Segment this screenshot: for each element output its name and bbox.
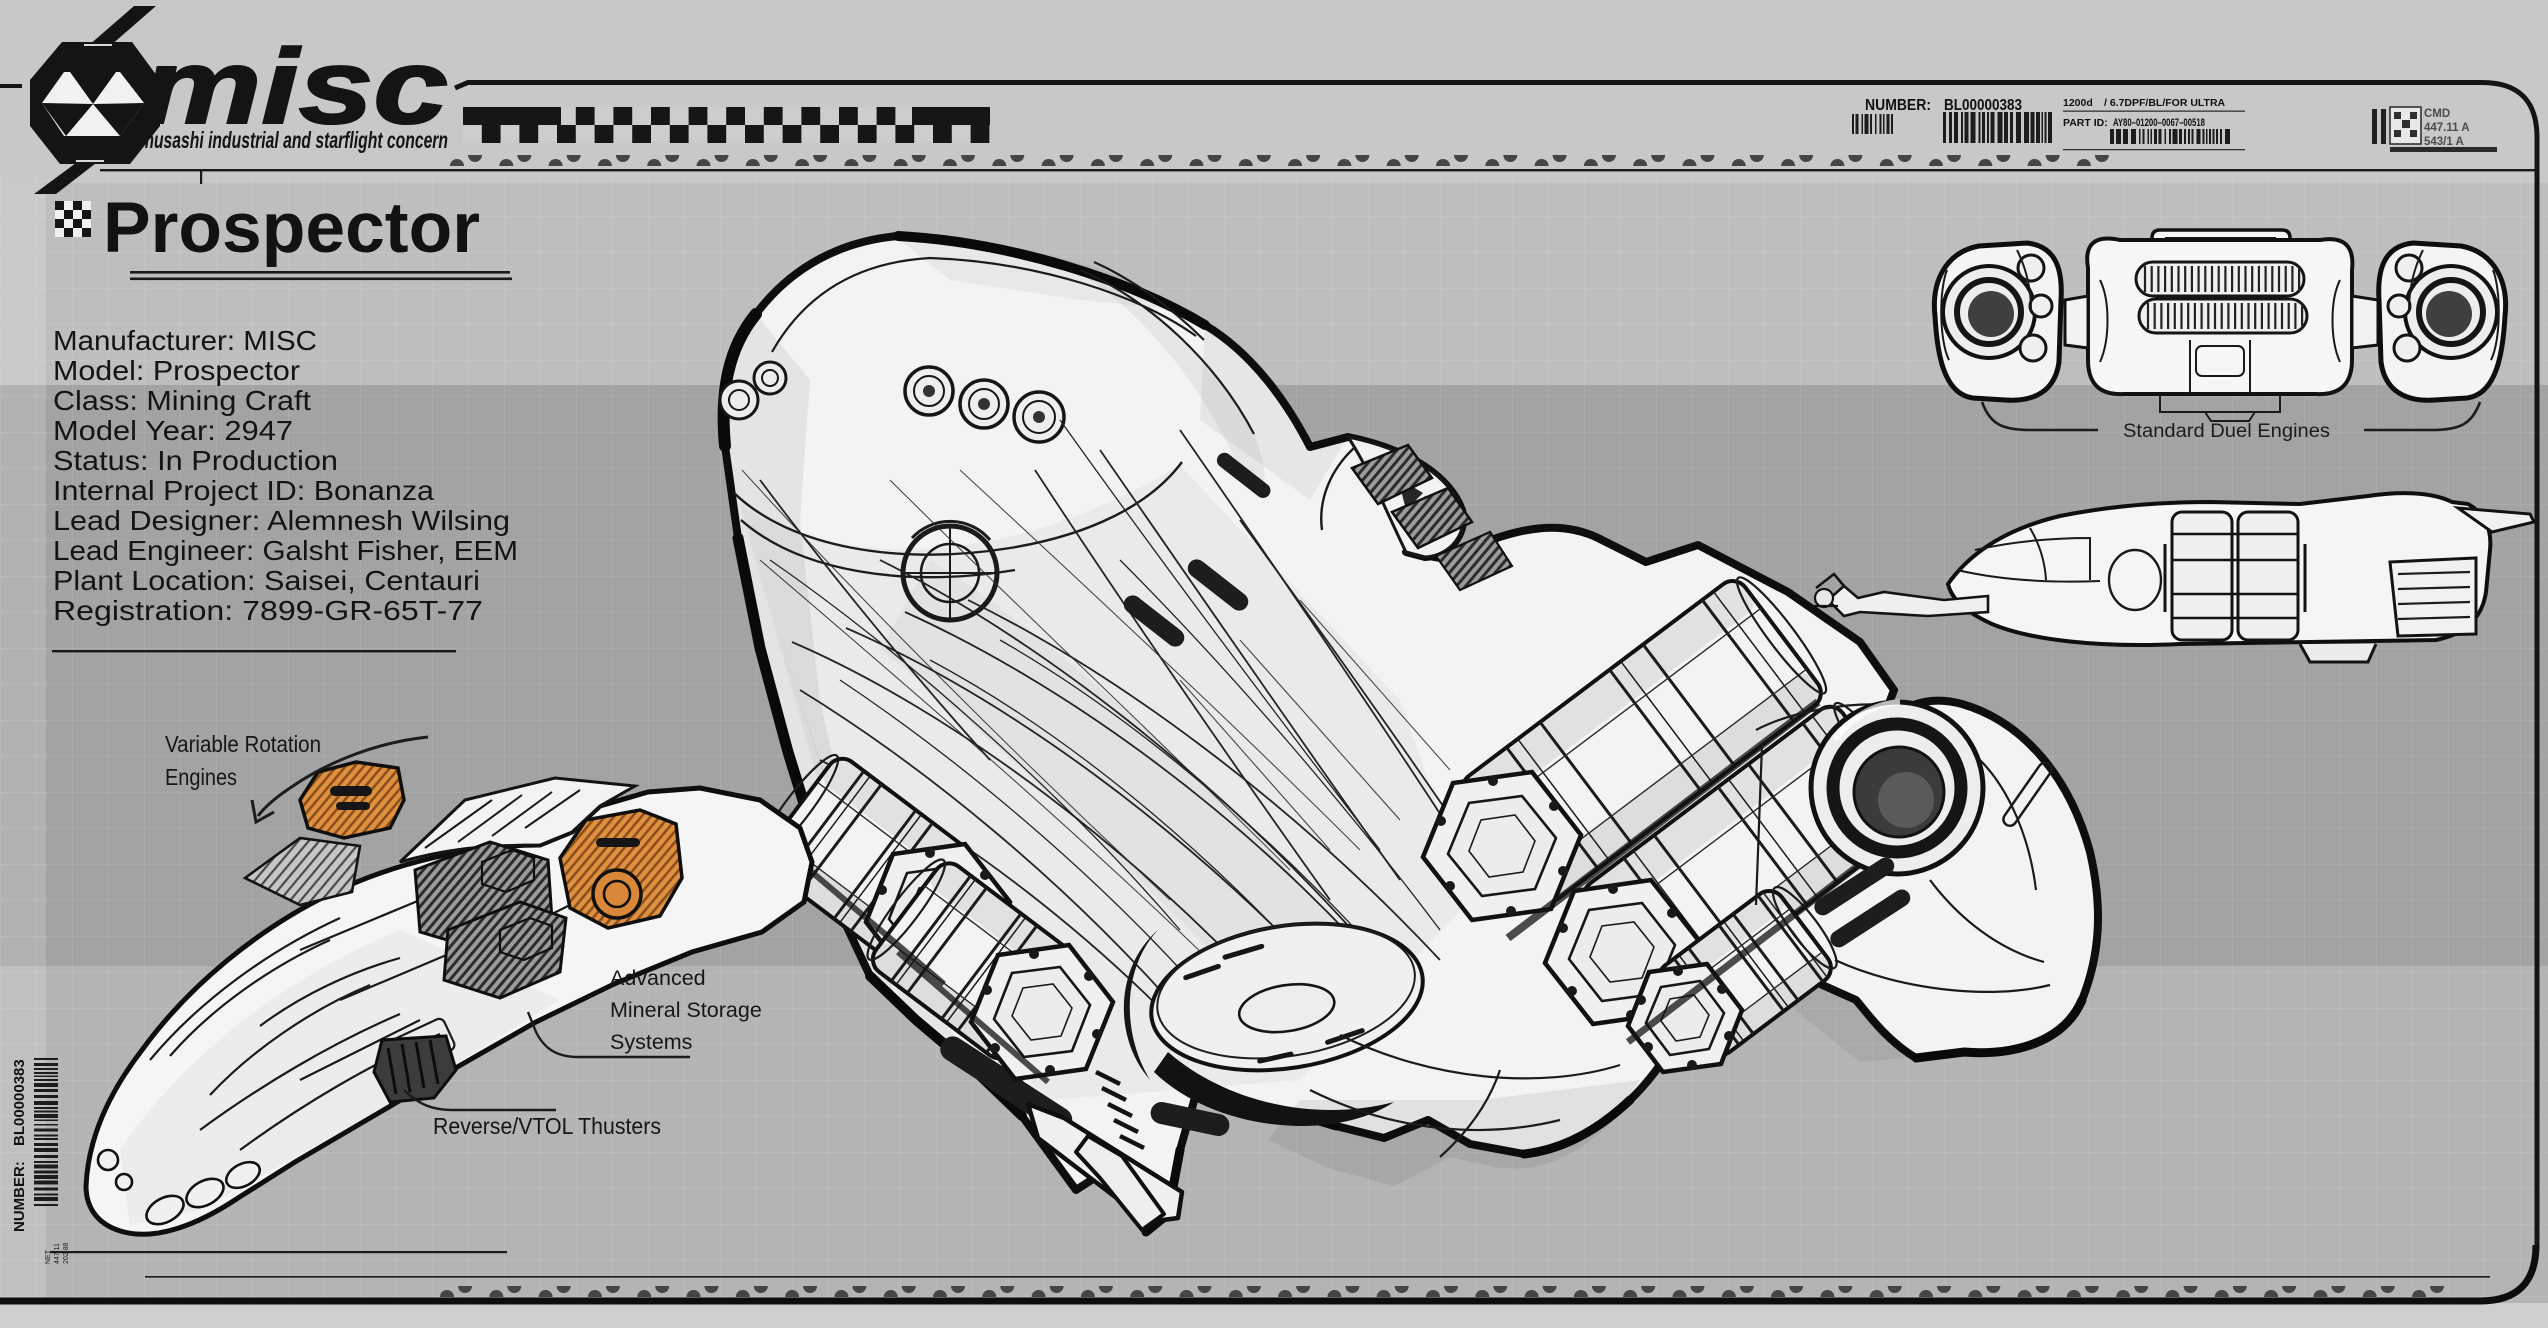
svg-text:Systems: Systems bbox=[610, 1030, 692, 1054]
svg-text:Class: Mining Craft: Class: Mining Craft bbox=[53, 385, 311, 416]
svg-text:Mineral Storage: Mineral Storage bbox=[610, 998, 762, 1022]
svg-text:PART ID:: PART ID: bbox=[2063, 117, 2108, 129]
svg-text:NUMBER:: NUMBER: bbox=[11, 1161, 28, 1232]
svg-text:Manufacturer: MISC: Manufacturer: MISC bbox=[53, 325, 317, 356]
svg-text:Internal Project ID: Bonanza: Internal Project ID: Bonanza bbox=[53, 475, 434, 506]
svg-text:543/1 A: 543/1 A bbox=[2424, 136, 2464, 148]
svg-text:1200d: 1200d bbox=[2063, 97, 2093, 109]
svg-text:202.88: 202.88 bbox=[63, 1242, 70, 1264]
svg-text:Lead Designer: Alemnesh Wilsin: Lead Designer: Alemnesh Wilsing bbox=[53, 505, 510, 536]
svg-text:BL00000383: BL00000383 bbox=[1944, 97, 2022, 114]
svg-text:Reverse/VTOL Thusters: Reverse/VTOL Thusters bbox=[433, 1113, 661, 1139]
svg-text:NUMBER:: NUMBER: bbox=[1865, 97, 1931, 114]
svg-text:447.11: 447.11 bbox=[54, 1243, 61, 1264]
svg-text:Engines: Engines bbox=[165, 764, 237, 790]
svg-text:musashi industrial and starfli: musashi industrial and starflight concer… bbox=[140, 127, 448, 153]
svg-text:447.11 A: 447.11 A bbox=[2424, 122, 2470, 134]
svg-text:Plant Location: Saisei, Centau: Plant Location: Saisei, Centauri bbox=[53, 565, 480, 596]
svg-text:CMD: CMD bbox=[2424, 108, 2450, 120]
svg-text:Standard Duel Engines: Standard Duel Engines bbox=[2123, 421, 2330, 442]
svg-text:Model: Prospector: Model: Prospector bbox=[53, 355, 300, 386]
svg-text:BL00000383: BL00000383 bbox=[11, 1059, 28, 1146]
svg-text:Variable Rotation: Variable Rotation bbox=[165, 731, 321, 757]
svg-text:Model Year: 2947: Model Year: 2947 bbox=[53, 415, 293, 446]
svg-text:Advanced: Advanced bbox=[610, 966, 706, 990]
svg-text:Registration: 7899-GR-65T-77: Registration: 7899-GR-65T-77 bbox=[53, 595, 483, 626]
svg-text:Lead Engineer: Galsht Fisher,: Lead Engineer: Galsht Fisher, EEM bbox=[53, 535, 518, 566]
svg-text:AY80–01200–0067–00518: AY80–01200–0067–00518 bbox=[2113, 117, 2205, 129]
svg-text:/ 6.7DPF/BL/FOR ULTRA: / 6.7DPF/BL/FOR ULTRA bbox=[2104, 97, 2226, 109]
svg-text:Status: In Production: Status: In Production bbox=[53, 445, 338, 476]
svg-text:Prospector: Prospector bbox=[103, 189, 480, 268]
